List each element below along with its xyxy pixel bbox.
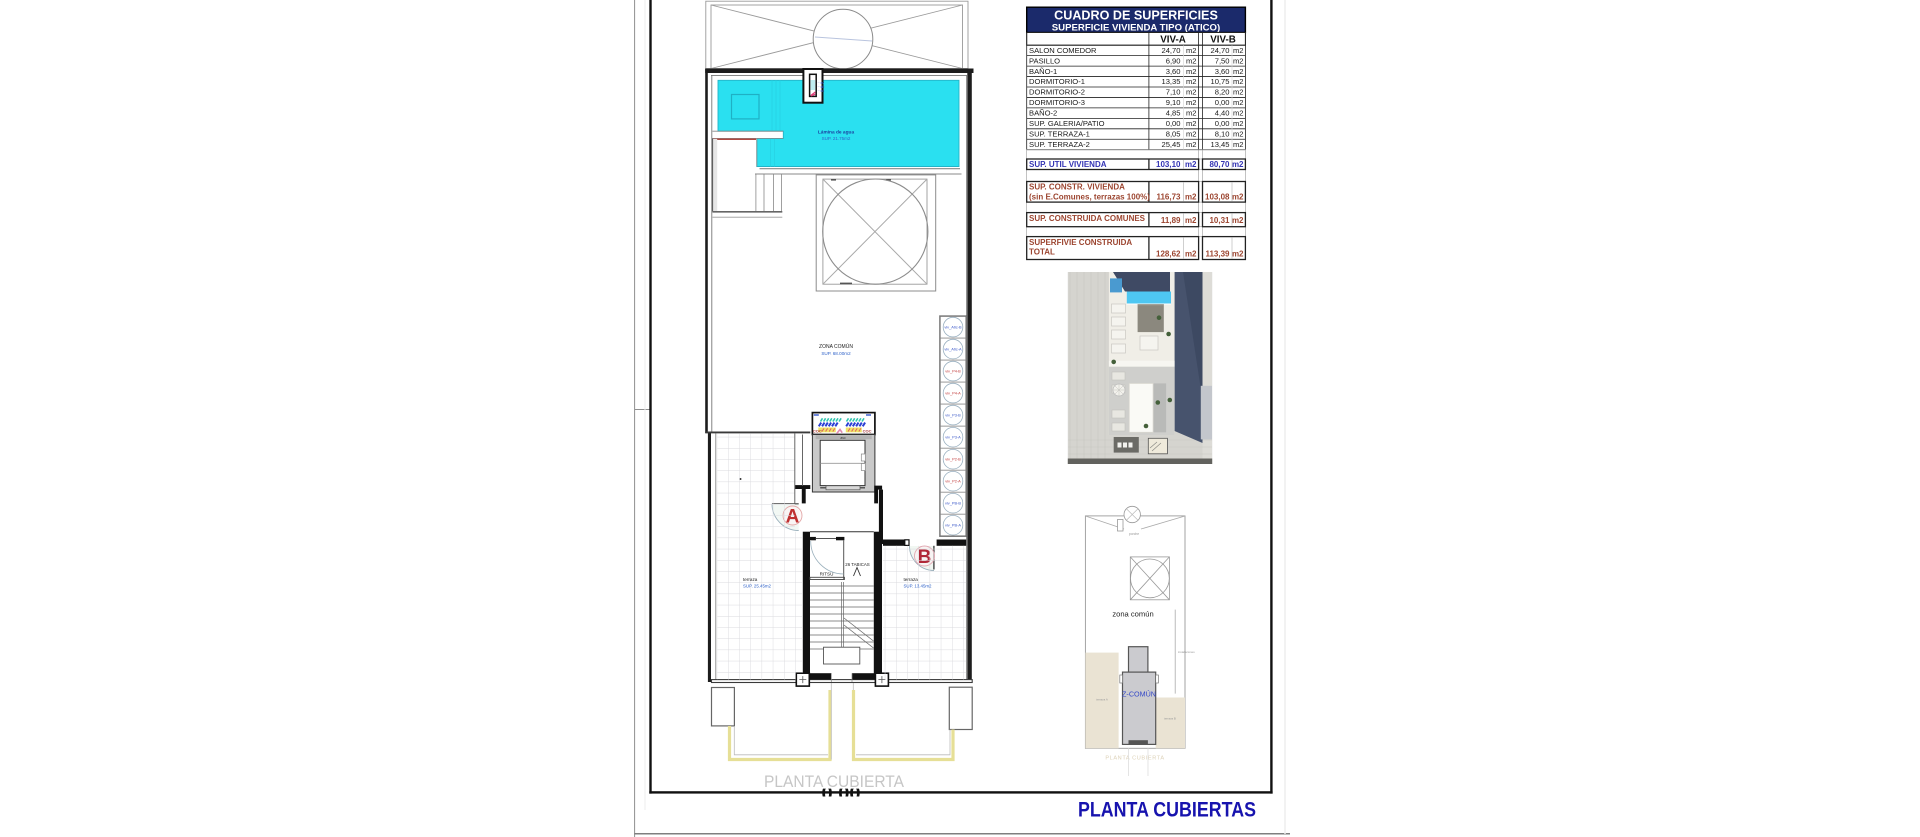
svg-text:m2: m2 <box>1233 88 1244 97</box>
svg-text:m2: m2 <box>1185 192 1197 201</box>
svg-text:SUP. TERRAZA-1: SUP. TERRAZA-1 <box>1029 130 1090 139</box>
svg-text:80,70: 80,70 <box>1209 160 1230 169</box>
svg-text:SUPERFIVIE CONSTRUIDA: SUPERFIVIE CONSTRUIDA <box>1029 238 1132 247</box>
svg-text:m2: m2 <box>1186 56 1197 65</box>
svg-text:m2: m2 <box>1232 192 1244 201</box>
svg-text:m2: m2 <box>1185 250 1197 259</box>
svg-text:10,75: 10,75 <box>1210 77 1229 86</box>
svg-text:m2: m2 <box>1232 216 1244 225</box>
svg-text:SUP. UTIL VIVIENDA: SUP. UTIL VIVIENDA <box>1029 160 1107 169</box>
svg-text:m2: m2 <box>1186 109 1197 118</box>
svg-text:m2: m2 <box>1233 56 1244 65</box>
svg-text:viv_P3-B: viv_P3-B <box>945 412 961 417</box>
svg-text:DORMITORIO-2: DORMITORIO-2 <box>1029 88 1085 97</box>
svg-text:25,45: 25,45 <box>1161 140 1180 149</box>
svg-text:SALON COMEDOR: SALON COMEDOR <box>1029 46 1097 55</box>
svg-text:viv_P4-B: viv_P4-B <box>945 368 961 373</box>
svg-text:DORMITORIO-3: DORMITORIO-3 <box>1029 98 1085 107</box>
svg-text:0,00: 0,00 <box>1215 119 1230 128</box>
svg-text:viv_P4-A: viv_P4-A <box>945 390 961 395</box>
svg-text:ZONA COMÚN: ZONA COMÚN <box>819 343 853 350</box>
svg-text:13,35: 13,35 <box>1161 77 1180 86</box>
svg-text:113,39: 113,39 <box>1205 250 1230 259</box>
svg-text:4,40: 4,40 <box>1215 109 1230 118</box>
svg-text:9,10: 9,10 <box>1166 98 1181 107</box>
svg-text:128,62: 128,62 <box>1156 250 1181 259</box>
svg-text:viv_PB-A: viv_PB-A <box>945 523 961 528</box>
svg-text:viv_P3-A: viv_P3-A <box>945 435 961 440</box>
svg-text:m2: m2 <box>1233 119 1244 128</box>
svg-text:PLANTA CUBIERTAS: PLANTA CUBIERTAS <box>1078 799 1256 822</box>
svg-text:m2: m2 <box>1233 130 1244 139</box>
svg-text:0,00: 0,00 <box>1215 98 1230 107</box>
svg-text:instalaciones: instalaciones <box>1178 650 1195 654</box>
svg-text:viv_Atic-A: viv_Atic-A <box>944 346 962 351</box>
svg-text:m2: m2 <box>1186 46 1197 55</box>
svg-text:terraza A: terraza A <box>1096 698 1108 702</box>
svg-text:8,10: 8,10 <box>1215 130 1230 139</box>
svg-text:116,73: 116,73 <box>1156 192 1181 201</box>
svg-text:m2: m2 <box>1186 130 1197 139</box>
svg-text:m2: m2 <box>1233 109 1244 118</box>
svg-text:m2: m2 <box>1185 160 1197 169</box>
svg-text:6,90: 6,90 <box>1166 56 1181 65</box>
svg-text:m2: m2 <box>1186 77 1197 86</box>
svg-text:zona común: zona común <box>1112 610 1153 619</box>
svg-text:viv_P2-A: viv_P2-A <box>945 479 961 484</box>
svg-text:···an: ···an <box>818 89 825 93</box>
svg-text:DORMITORIO-1: DORMITORIO-1 <box>1029 77 1085 86</box>
svg-text:PLANTA CUBIERTA: PLANTA CUBIERTA <box>764 772 905 791</box>
svg-text:m2: m2 <box>1186 67 1197 76</box>
svg-text:SUPERFICIE VIVIENDA TIPO (ATI: SUPERFICIE VIVIENDA TIPO (ATICO) <box>1052 22 1220 33</box>
svg-text:PLANTA CUBIERTA: PLANTA CUBIERTA <box>1105 756 1164 762</box>
svg-text:m2: m2 <box>1233 140 1244 149</box>
svg-text:103,08: 103,08 <box>1205 192 1230 201</box>
svg-text:10,31: 10,31 <box>1209 216 1230 225</box>
svg-text:COC: COC <box>863 429 872 434</box>
svg-text:m2: m2 <box>1232 160 1244 169</box>
svg-text:porche: porche <box>1129 532 1139 536</box>
svg-text:Lámina de agua: Lámina de agua <box>818 130 855 136</box>
svg-text:RITSU: RITSU <box>820 572 834 577</box>
svg-text:m2: m2 <box>1186 98 1197 107</box>
svg-text:m2: m2 <box>1186 88 1197 97</box>
svg-text:SUP. GALERIA/PATIO: SUP. GALERIA/PATIO <box>1029 119 1105 128</box>
svg-text:8,20: 8,20 <box>1215 88 1230 97</box>
svg-text:CUADRO DE SUPERFICIES: CUADRO DE SUPERFICIES <box>1054 8 1218 22</box>
svg-text:m2: m2 <box>1232 250 1244 259</box>
svg-text:m2: m2 <box>1186 140 1197 149</box>
svg-text:SUP. 25.45m2: SUP. 25.45m2 <box>743 584 772 589</box>
svg-text:SUP. 13.45m2: SUP. 13.45m2 <box>904 584 933 589</box>
svg-text:13,45: 13,45 <box>1210 140 1229 149</box>
svg-text:3,60: 3,60 <box>1215 67 1230 76</box>
svg-text:BAÑO-2: BAÑO-2 <box>1029 109 1057 118</box>
svg-text:terraza B: terraza B <box>1164 717 1176 721</box>
svg-text:terraza: terraza <box>743 577 758 582</box>
svg-text:11,89: 11,89 <box>1161 216 1181 225</box>
svg-text:24,70: 24,70 <box>1161 46 1180 55</box>
svg-text:7,50: 7,50 <box>1215 56 1230 65</box>
svg-text:24,70: 24,70 <box>1210 46 1229 55</box>
svg-text:m2: m2 <box>1233 77 1244 86</box>
svg-text:m2: m2 <box>1233 67 1244 76</box>
svg-text:VIV-A: VIV-A <box>1160 35 1186 46</box>
svg-text:8,05: 8,05 <box>1166 130 1181 139</box>
svg-text:SUP. CONSTR. VIVIENDA: SUP. CONSTR. VIVIENDA <box>1029 183 1125 192</box>
svg-text:viv_Atic-B: viv_Atic-B <box>944 324 962 329</box>
svg-text:SUP. CONSTRUIDA COMUNES: SUP. CONSTRUIDA COMUNES <box>1029 214 1146 223</box>
svg-text:terraza: terraza <box>904 577 919 582</box>
svg-text:BAÑO-1: BAÑO-1 <box>1029 67 1057 76</box>
svg-text:m2: m2 <box>1186 119 1197 128</box>
svg-text:TOTAL: TOTAL <box>1029 247 1055 256</box>
svg-text:viv_PB-B: viv_PB-B <box>945 501 961 506</box>
svg-text:7,10: 7,10 <box>1166 88 1181 97</box>
svg-text:3,60: 3,60 <box>1166 67 1181 76</box>
svg-text:0,00: 0,00 <box>1166 119 1181 128</box>
svg-text:SUP. 68.00m2: SUP. 68.00m2 <box>821 351 851 356</box>
svg-text:26 TABICAS: 26 TABICAS <box>845 562 870 567</box>
svg-text:viv_P2-B: viv_P2-B <box>945 457 961 462</box>
svg-text:PASILLO: PASILLO <box>1029 56 1060 65</box>
svg-text:103,10: 103,10 <box>1156 160 1181 169</box>
svg-text:SUP. TERRAZA-2: SUP. TERRAZA-2 <box>1029 140 1090 149</box>
svg-text:Z-COMÚN: Z-COMÚN <box>1122 689 1156 698</box>
svg-text:m2: m2 <box>1185 216 1197 225</box>
svg-text:m2: m2 <box>1233 46 1244 55</box>
svg-text:VIV-B: VIV-B <box>1210 35 1236 46</box>
svg-text:asc: asc <box>840 436 846 440</box>
svg-text:(sin E.Comunes, terrazas 100%): (sin E.Comunes, terrazas 100%) <box>1029 192 1150 201</box>
svg-text:m2: m2 <box>1233 98 1244 107</box>
svg-text:COC: COC <box>813 429 822 434</box>
svg-text:SUP. 21.75m2: SUP. 21.75m2 <box>822 136 851 141</box>
svg-text:4,85: 4,85 <box>1166 109 1181 118</box>
